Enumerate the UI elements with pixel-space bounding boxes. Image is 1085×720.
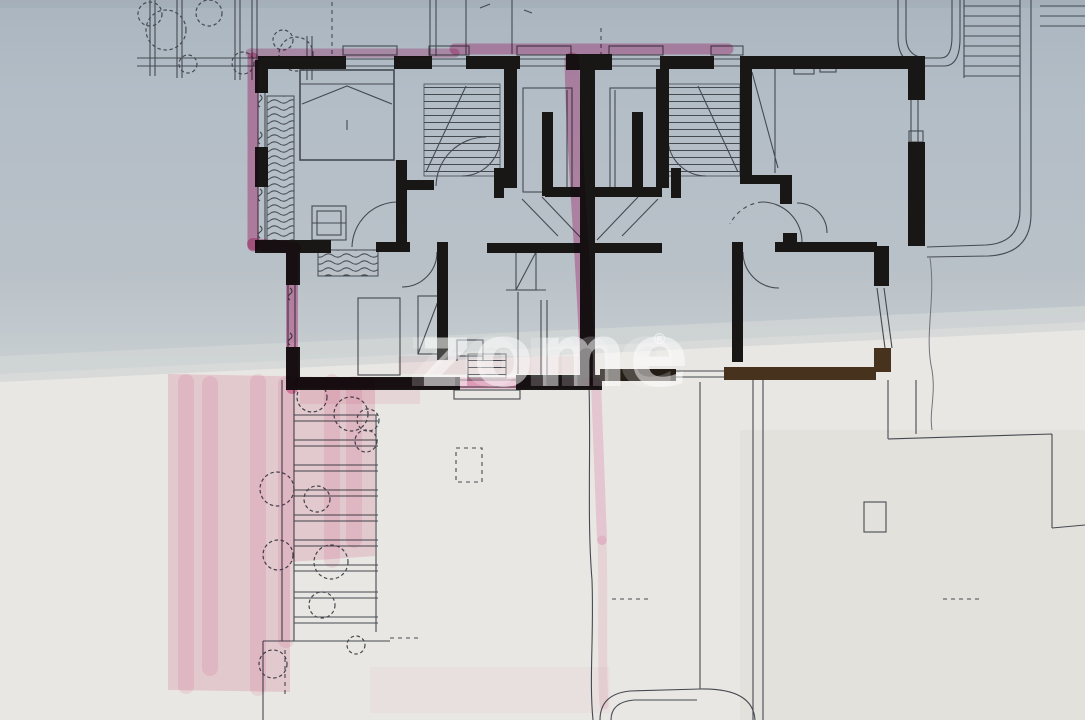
watermark: zome zome ® xyxy=(408,304,691,407)
floor-plan-photo: zome zome ® xyxy=(0,0,1085,720)
paper-shade-right xyxy=(740,430,1085,720)
chair xyxy=(312,206,346,240)
floor-plan-canvas: zome zome ® xyxy=(0,0,1085,720)
wardrobe-wavy xyxy=(267,96,294,243)
stairs-right-unit xyxy=(668,84,740,176)
dresser-wavy xyxy=(318,250,378,276)
stairs-left-unit xyxy=(424,84,500,176)
watermark-text: zome xyxy=(420,304,691,407)
photo-top-edge-shadow xyxy=(0,0,1085,8)
watermark-registered-icon: ® xyxy=(652,330,667,348)
